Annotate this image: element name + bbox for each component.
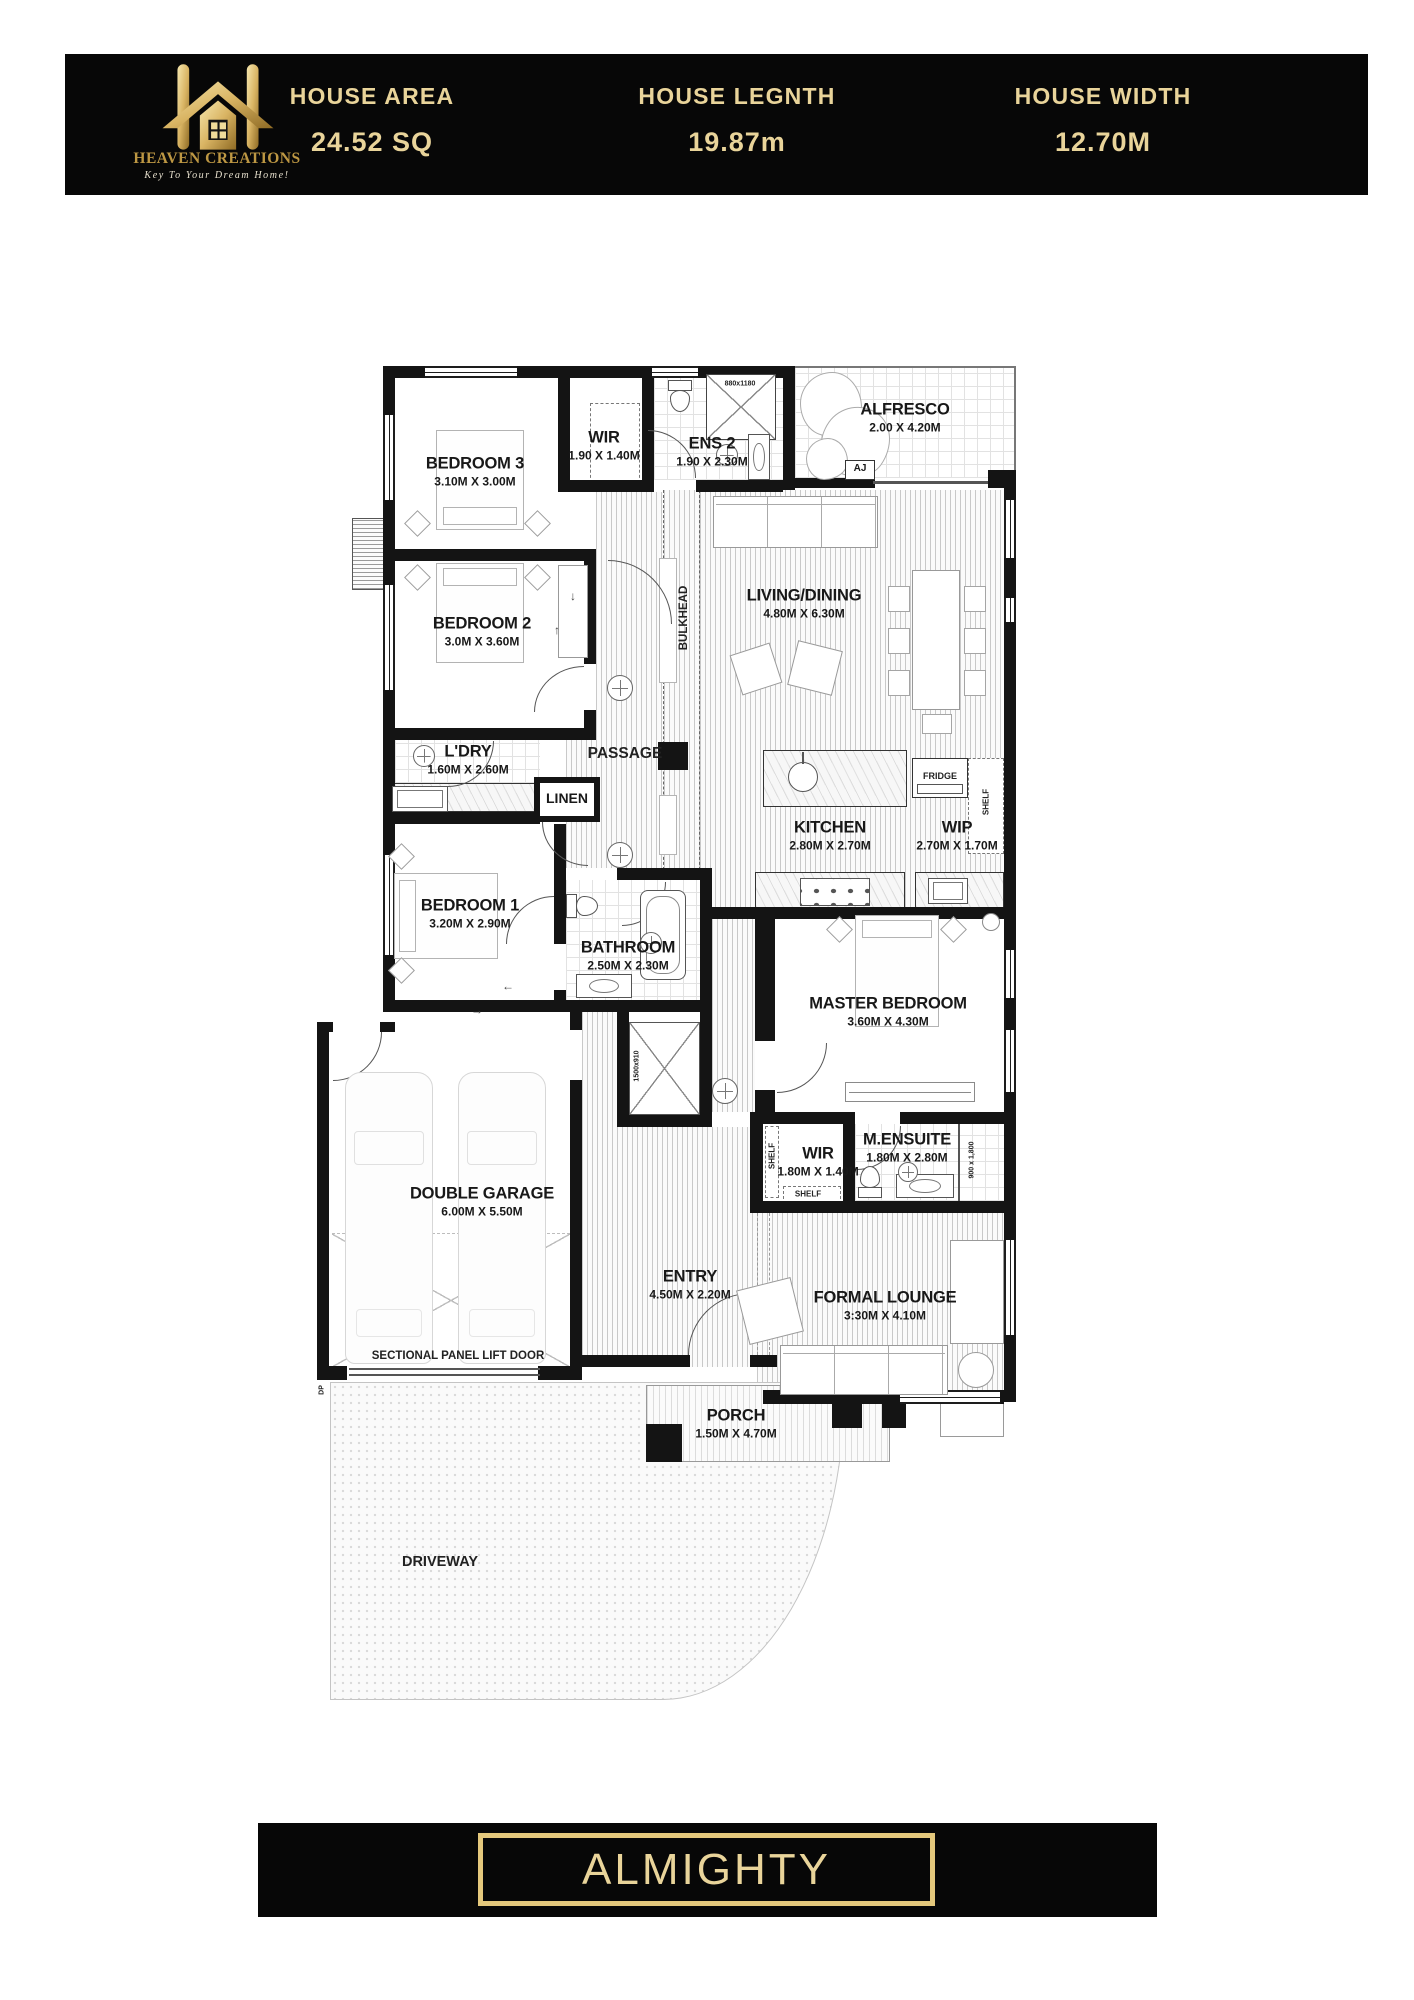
label-bedroom1: BEDROOM 1 3.20M X 2.90M [421, 895, 519, 932]
toilet-bathroom [566, 894, 598, 918]
kitchen-island [763, 750, 907, 807]
linen-label: LINEN [546, 790, 588, 806]
window [652, 366, 698, 378]
room-dims: 1.90 X 1.40M [568, 449, 639, 465]
lounge-sofa [780, 1345, 948, 1395]
label-wir-top: WIR 1.90 X 1.40M [568, 427, 639, 464]
label-living: LIVING/DINING 4.80M X 6.30M [747, 585, 862, 622]
window [1004, 950, 1016, 998]
label-shelf-wip: SHELF [982, 789, 991, 815]
label-dp: DP [319, 1385, 326, 1395]
label-ldry: L'DRY 1.60M X 2.60M [427, 741, 508, 778]
wall [783, 366, 795, 490]
wall [570, 1355, 690, 1367]
label-fridge: FRIDGE [923, 771, 957, 781]
label-shower-bath-size: 1500x910 [634, 1050, 641, 1081]
master-robe [845, 1082, 975, 1102]
shower-screen [958, 1124, 960, 1201]
wall [755, 1090, 775, 1112]
toilet-ensuite [858, 1166, 882, 1198]
room-name: WIP [916, 817, 997, 838]
room-name: DOUBLE GARAGE [410, 1183, 554, 1204]
room-dims: 1.80M X 2.80M [863, 1151, 951, 1167]
vanity-ens2 [748, 434, 770, 480]
label-shower-ensuite-size: 900 x 1,800 [969, 1142, 976, 1179]
room-dims: 1.60M X 2.60M [427, 763, 508, 779]
label-passage: PASSAGE [588, 745, 663, 763]
label-garage: DOUBLE GARAGE 6.00M X 5.50M [410, 1183, 554, 1220]
footer-bar: ALMIGHTY [258, 1823, 1157, 1917]
door-arc [542, 822, 588, 866]
window [1004, 598, 1016, 622]
wall [700, 907, 1004, 919]
label-ens2: ENS 2 1.90 X 2.30M [676, 433, 747, 470]
linen-closet: LINEN [534, 777, 600, 822]
window [1004, 1240, 1016, 1335]
kitchen-sink [788, 762, 818, 792]
label-wip: WIP 2.70M X 1.70M [916, 817, 997, 854]
room-name: BEDROOM 3 [426, 453, 524, 474]
dining-table [912, 570, 960, 710]
room-name: ENS 2 [676, 433, 747, 454]
master-mirror [982, 913, 1000, 931]
wall [755, 907, 775, 1041]
room-dims: 3:30M X 4.10M [814, 1309, 957, 1325]
dining-chair [922, 714, 952, 734]
aj-marker: AJ [845, 460, 875, 480]
ceiling-light-icon [607, 675, 633, 701]
room-dims: 2.70M X 1.70M [916, 839, 997, 855]
lounge-chaise [950, 1240, 1004, 1344]
room-name: LIVING/DINING [747, 585, 862, 606]
wall [383, 1000, 712, 1012]
side-table [404, 564, 431, 591]
alfresco-plant [806, 438, 848, 480]
room-name: WIR [777, 1143, 858, 1164]
alfresco-column [988, 470, 1016, 488]
balcony-strip [352, 518, 385, 590]
room-name: MASTER BEDROOM [809, 993, 967, 1014]
porch-post [646, 1424, 682, 1462]
toilet-ens2 [668, 380, 692, 412]
room-name: BEDROOM 2 [433, 613, 531, 634]
garage-door-line [349, 1368, 540, 1370]
room-name: ENTRY [649, 1266, 730, 1287]
entry-floor-top [582, 1012, 617, 1127]
label-wir-master: WIR 1.80M X 1.40M [777, 1143, 858, 1180]
kitchen-tap [802, 752, 804, 764]
wall [383, 812, 540, 824]
wall [750, 1112, 763, 1213]
wall [558, 480, 650, 492]
wall [696, 480, 783, 492]
label-bathroom: BATHROOM 2.50M X 2.30M [581, 937, 675, 974]
room-name: M.ENSUITE [863, 1129, 951, 1150]
porch-post [882, 1404, 906, 1428]
wall [570, 1080, 582, 1366]
label-bedroom2: BEDROOM 2 3.0M X 3.60M [433, 613, 531, 650]
bedroom2-robe [558, 565, 588, 658]
room-dims: 1.50M X 4.70M [695, 1427, 776, 1443]
label-mensuite: M.ENSUITE 1.80M X 2.80M [863, 1129, 951, 1166]
room-dims: 4.50M X 2.20M [649, 1288, 730, 1304]
dining-chair [964, 586, 986, 612]
room-name: PORCH [695, 1405, 776, 1426]
garage-door-line [349, 1374, 540, 1376]
room-dims: 6.00M X 5.50M [410, 1205, 554, 1221]
label-driveway: DRIVEWAY [402, 1554, 478, 1570]
wall [763, 1201, 1004, 1213]
arrow-right-icon: → [471, 1003, 483, 1017]
wall [317, 1022, 329, 1380]
plan-name-plate: ALMIGHTY [478, 1833, 935, 1906]
arrow-up-icon: ↑ [554, 623, 560, 637]
alfresco-window-line [873, 481, 990, 484]
label-master: MASTER BEDROOM 3.60M X 4.30M [809, 993, 967, 1030]
label-alfresco: ALFRESCO 2.00 X 4.20M [860, 399, 949, 436]
ceiling-light-icon [607, 842, 633, 868]
room-dims: 3.0M X 3.60M [433, 635, 531, 651]
room-name: WIR [568, 427, 639, 448]
bulkhead-beam-2 [659, 795, 677, 855]
room-dims: 3.60M X 4.30M [809, 1015, 967, 1031]
label-bedroom3: BEDROOM 3 3.10M X 3.00M [426, 453, 524, 490]
side-table [524, 510, 551, 537]
label-shower-ens2-size: 880x1180 [725, 381, 756, 388]
dining-chair [888, 586, 910, 612]
wall [700, 1010, 712, 1127]
porch-post [832, 1404, 862, 1428]
room-name: KITCHEN [789, 817, 870, 838]
side-table [940, 916, 967, 943]
wall [383, 549, 596, 561]
room-dims: 1.80M X 1.40M [777, 1165, 858, 1181]
wall [750, 1355, 777, 1367]
room-name: BATHROOM [581, 937, 675, 958]
label-shelf-wir-side: SHELF [768, 1143, 777, 1169]
vanity-bathroom [576, 974, 632, 998]
wall [617, 868, 712, 880]
window [383, 585, 395, 690]
laundry-trough [392, 786, 448, 812]
lounge-side-table [958, 1352, 994, 1388]
room-dims: 2.00 X 4.20M [860, 421, 949, 437]
room-dims: 3.20M X 2.90M [421, 917, 519, 933]
room-name: ALFRESCO [860, 399, 949, 420]
label-shelf-wir-bottom: SHELF [795, 1190, 821, 1199]
floor-plan: ↓ ↑ ← → LINEN AJ BEDROOM 3 3.10M X 3.00M… [0, 0, 1414, 2000]
wall [317, 1366, 347, 1380]
room-name: L'DRY [427, 741, 508, 762]
arrow-down-icon: ↓ [570, 589, 576, 603]
room-dims: 4.80M X 6.30M [747, 607, 862, 623]
dining-chair [888, 628, 910, 654]
pillar [658, 742, 688, 770]
room-dims: 1.90 X 2.30M [676, 455, 747, 471]
door-arc [534, 666, 584, 712]
label-lounge: FORMAL LOUNGE 3:30M X 4.10M [814, 1287, 957, 1324]
wall [570, 1012, 582, 1030]
cooktop [800, 878, 870, 906]
arrow-left-icon: ← [502, 979, 514, 993]
side-table [826, 916, 853, 943]
wall [383, 728, 596, 740]
window [383, 415, 395, 500]
side-table [524, 564, 551, 591]
room-dims: 2.50M X 2.30M [581, 959, 675, 975]
wall [538, 1366, 582, 1380]
wall [700, 868, 712, 1012]
label-bulkhead: BULKHEAD [678, 586, 690, 651]
door-arc [777, 1043, 827, 1093]
dining-chair [964, 628, 986, 654]
side-table [404, 510, 431, 537]
label-entry: ENTRY 4.50M X 2.20M [649, 1266, 730, 1303]
dining-chair [888, 670, 910, 696]
wall [617, 1010, 629, 1127]
dining-chair [964, 670, 986, 696]
wall [554, 990, 566, 1012]
window [1004, 500, 1016, 558]
room-dims: 3.10M X 3.00M [426, 475, 524, 491]
room-name: FORMAL LOUNGE [814, 1287, 957, 1308]
ceiling-light-icon [712, 1078, 738, 1104]
window [1004, 1030, 1016, 1092]
wall [380, 1022, 395, 1032]
label-porch: PORCH 1.50M X 4.70M [695, 1405, 776, 1442]
living-sofa [713, 496, 878, 548]
label-kitchen: KITCHEN 2.80M X 2.70M [789, 817, 870, 854]
wall [900, 1112, 1004, 1124]
room-dims: 2.80M X 2.70M [789, 839, 870, 855]
label-sectional-door: SECTIONAL PANEL LIFT DOOR [372, 1350, 545, 1362]
window [425, 366, 517, 378]
wall [763, 1112, 855, 1124]
room-name: BEDROOM 1 [421, 895, 519, 916]
wall [617, 1115, 712, 1127]
wip-sink [928, 878, 968, 904]
